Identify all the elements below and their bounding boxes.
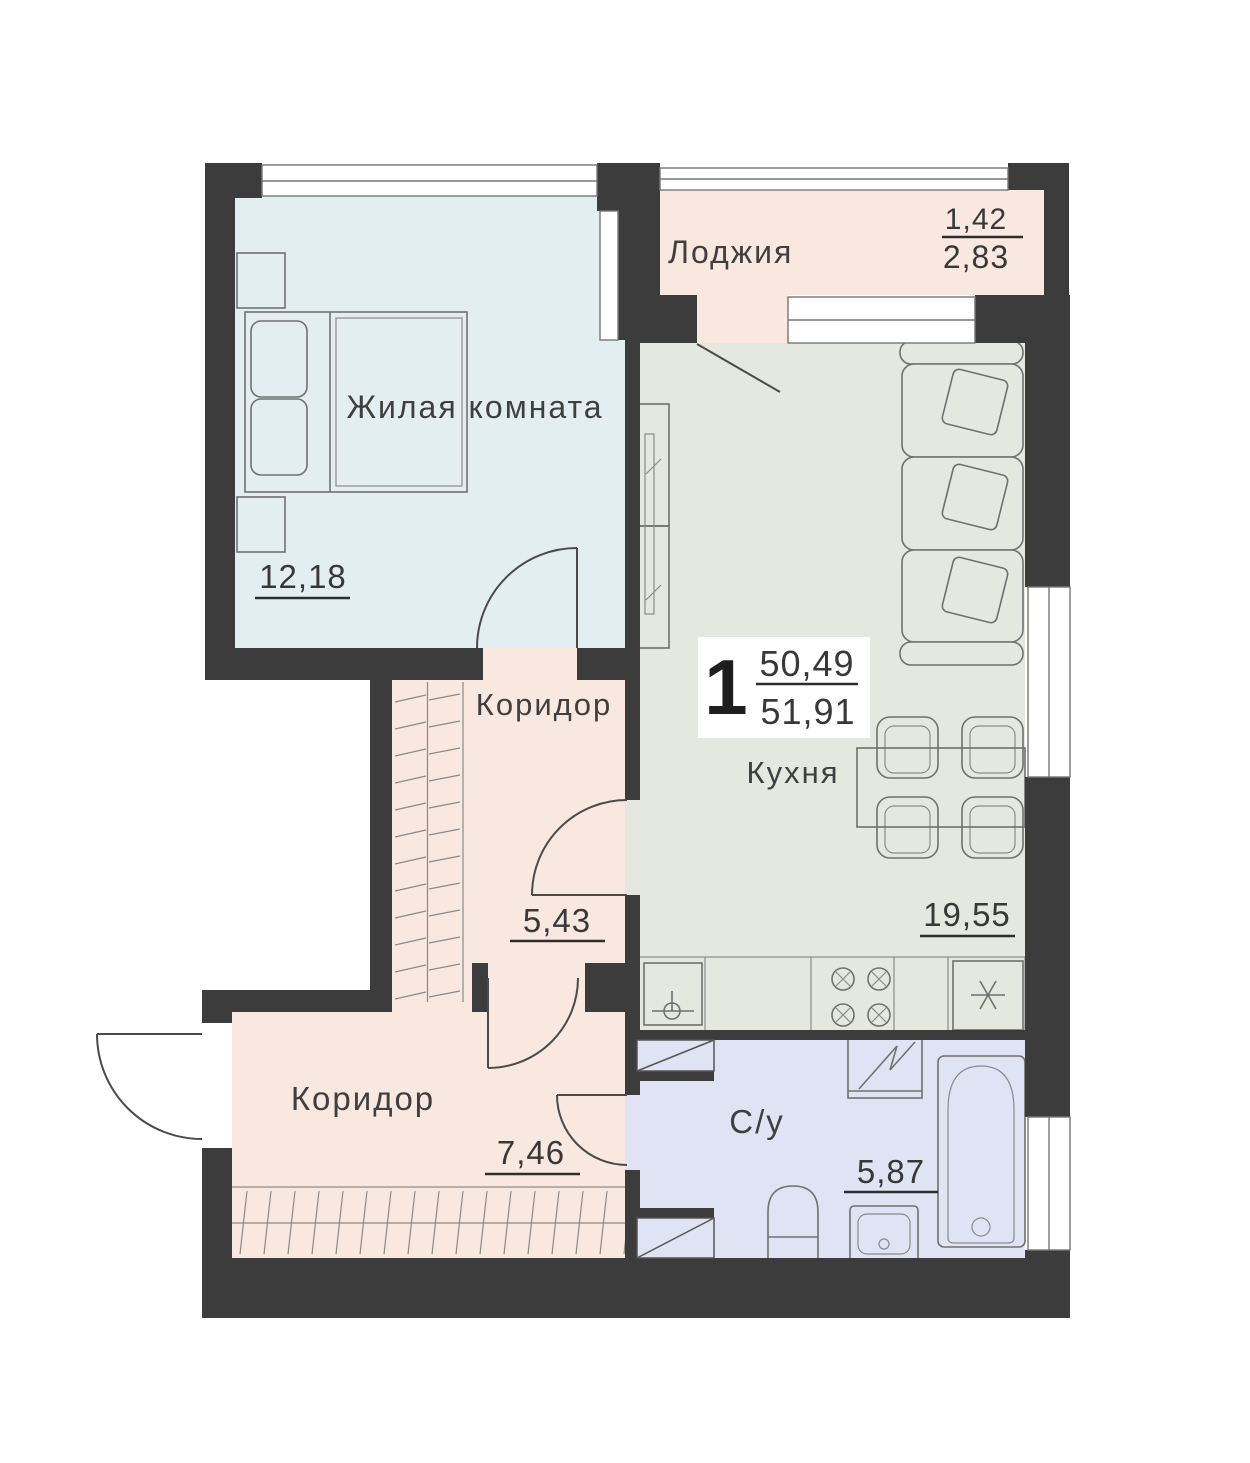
living-door-opening [483,648,577,680]
wall-corridor-lower-top [232,990,370,1012]
window-living-loggia [600,211,618,340]
wall-right-middle [1025,777,1070,1117]
area-corridor-lower: 7,46 [497,1134,565,1171]
label-bathroom: С/у [729,1103,785,1140]
door-entrance [97,1034,202,1139]
sofa-armrest [900,642,1023,665]
area-kitchen: 19,55 [923,896,1011,933]
wall-top-right-block [1008,163,1069,190]
badge-living-area: 50,49 [759,643,854,684]
floor-plan-page: 1 50,49 51,91 Жилая комната 12,18 Лоджия… [0,0,1250,1458]
sofa-armrest [900,341,1023,364]
wall-partition-upper [625,335,640,800]
label-living: Жилая комната [346,389,603,425]
area-corridor-upper: 5,43 [523,902,591,939]
balcony-door-opening [697,295,788,343]
area-bathroom: 5,87 [857,1153,925,1190]
area-loggia-full: 2,83 [943,239,1009,275]
wall-living-loggia-block [597,163,660,211]
area-living: 12,18 [259,558,347,595]
badge-total-area: 51,91 [760,691,855,732]
wall-vent-shaft-2 [637,1208,714,1218]
wall-entrance-jamb-top [202,990,232,1023]
sofa [900,341,1023,665]
door-swing-arc [97,1034,202,1139]
wall-loggia-bottom-right [975,295,1028,343]
floor-plan: 1 50,49 51,91 Жилая комната 12,18 Лоджия… [0,0,1250,1458]
pillow [251,399,307,475]
wall-left [205,163,235,680]
badge-room-count: 1 [704,643,747,731]
area-loggia-reduced: 1,42 [945,203,1007,236]
wall-bottom [202,1258,1070,1318]
wall-wardrobe-left [370,648,392,1012]
wall-living-bottom-left [205,648,483,680]
wall-kitchen-bathroom [625,1030,1025,1040]
wall-entrance-jamb-bottom [202,1148,232,1258]
wall-right-upper [1025,295,1070,587]
wall-corridor-door-jamb-left [472,963,488,1012]
wall-vent-shaft-1 [637,1071,714,1081]
label-corridor-lower: Коридор [291,1080,435,1117]
label-kitchen: Кухня [747,755,840,790]
area-badge: 1 50,49 51,91 [698,637,870,738]
wardrobe-hatch-upper [392,682,463,1002]
bathroom-door-opening [625,1095,640,1170]
wardrobe-hatch-lower [232,1187,625,1258]
wall-corridor-door-jamb-right [585,963,640,1012]
wall-loggia-right [1044,190,1069,295]
kitchen-door-opening [625,800,640,895]
label-corridor-upper: Коридор [476,687,612,722]
pillow [251,321,307,397]
label-loggia: Лоджия [668,234,793,270]
